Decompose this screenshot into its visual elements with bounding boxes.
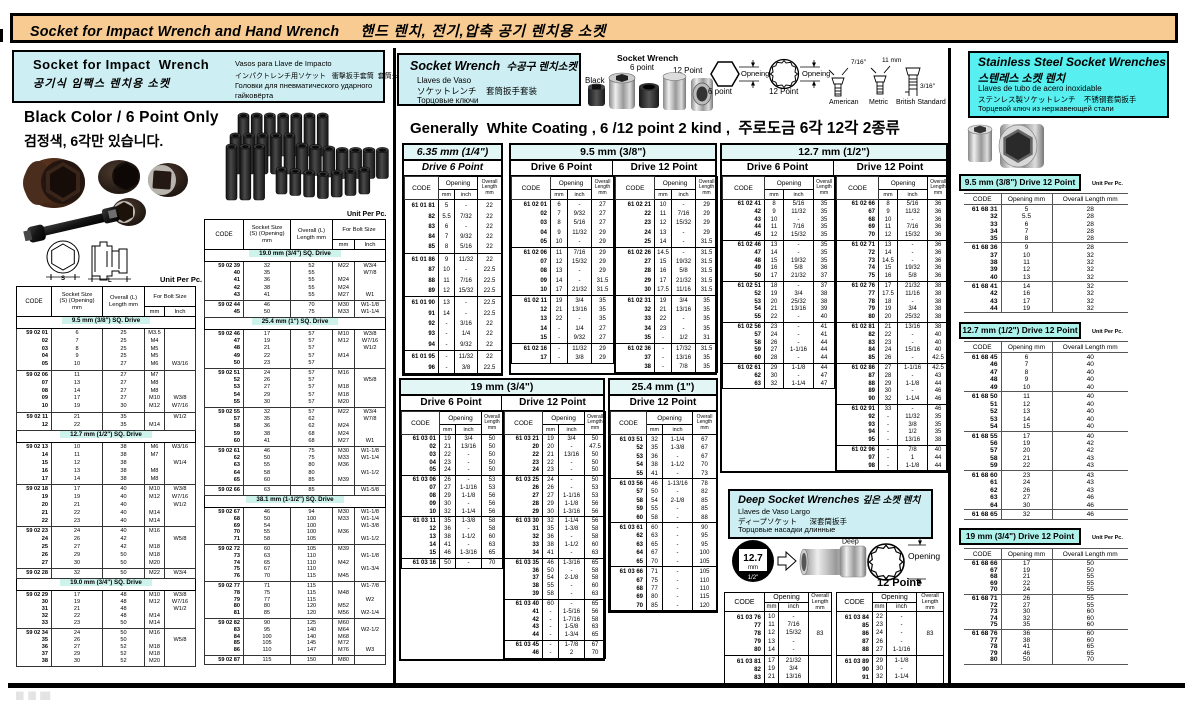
svg-text:1/2″: 1/2″ <box>748 575 759 581</box>
svg-text:S: S <box>61 276 65 282</box>
svg-text:Deep: Deep <box>842 539 859 546</box>
svg-text:12.7: 12.7 <box>743 553 763 564</box>
svg-text:mm: mm <box>748 565 758 571</box>
svg-text:L: L <box>108 278 112 284</box>
